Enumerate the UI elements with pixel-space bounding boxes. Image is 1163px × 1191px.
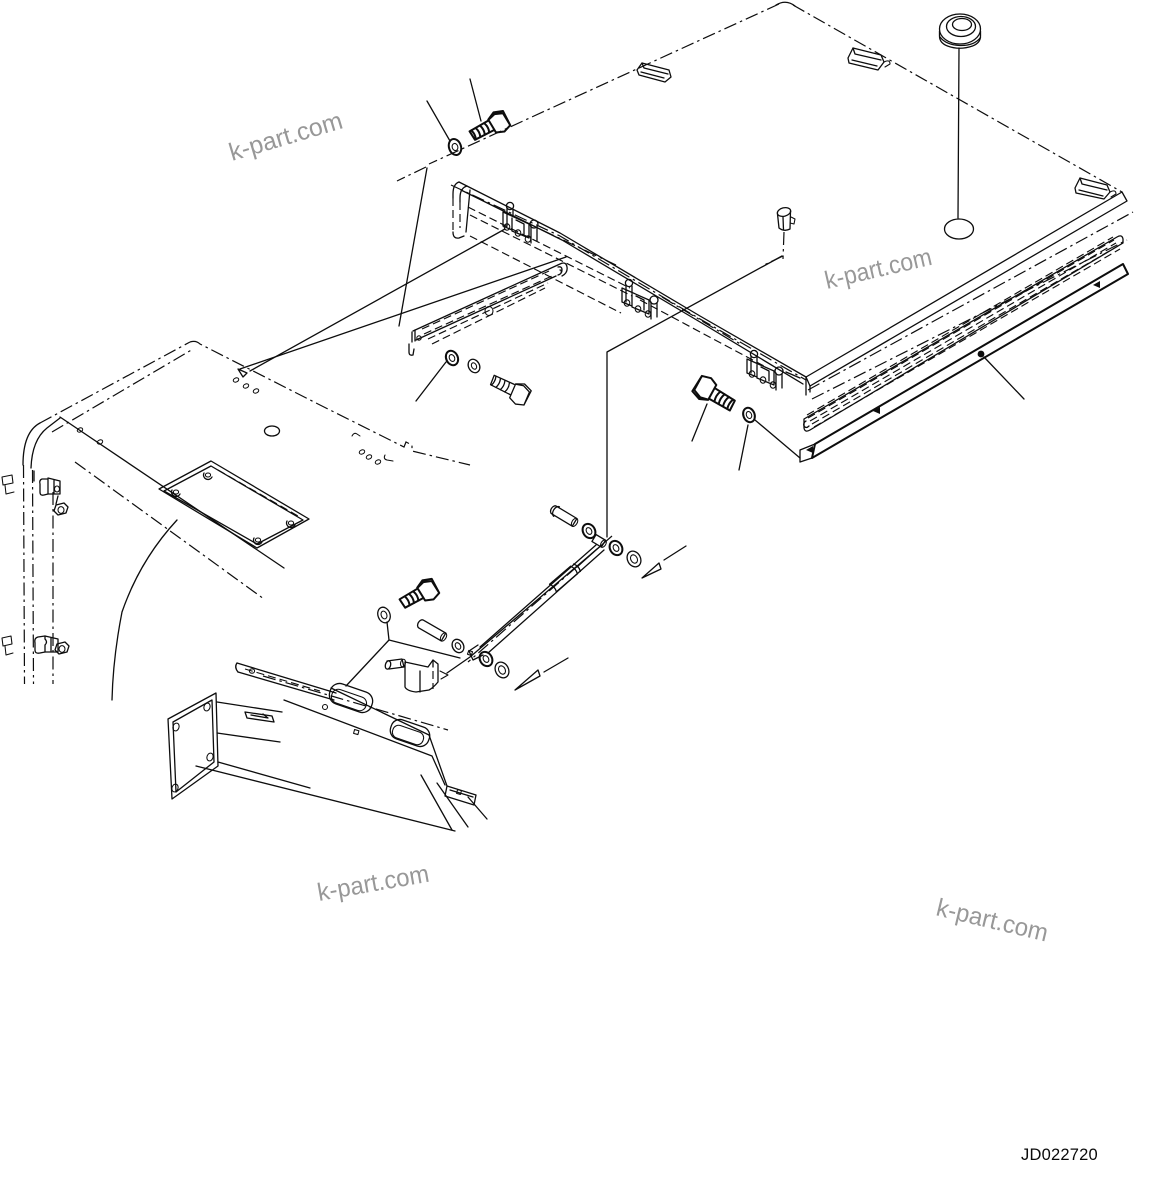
- svg-text:JD022720: JD022720: [1021, 1146, 1098, 1164]
